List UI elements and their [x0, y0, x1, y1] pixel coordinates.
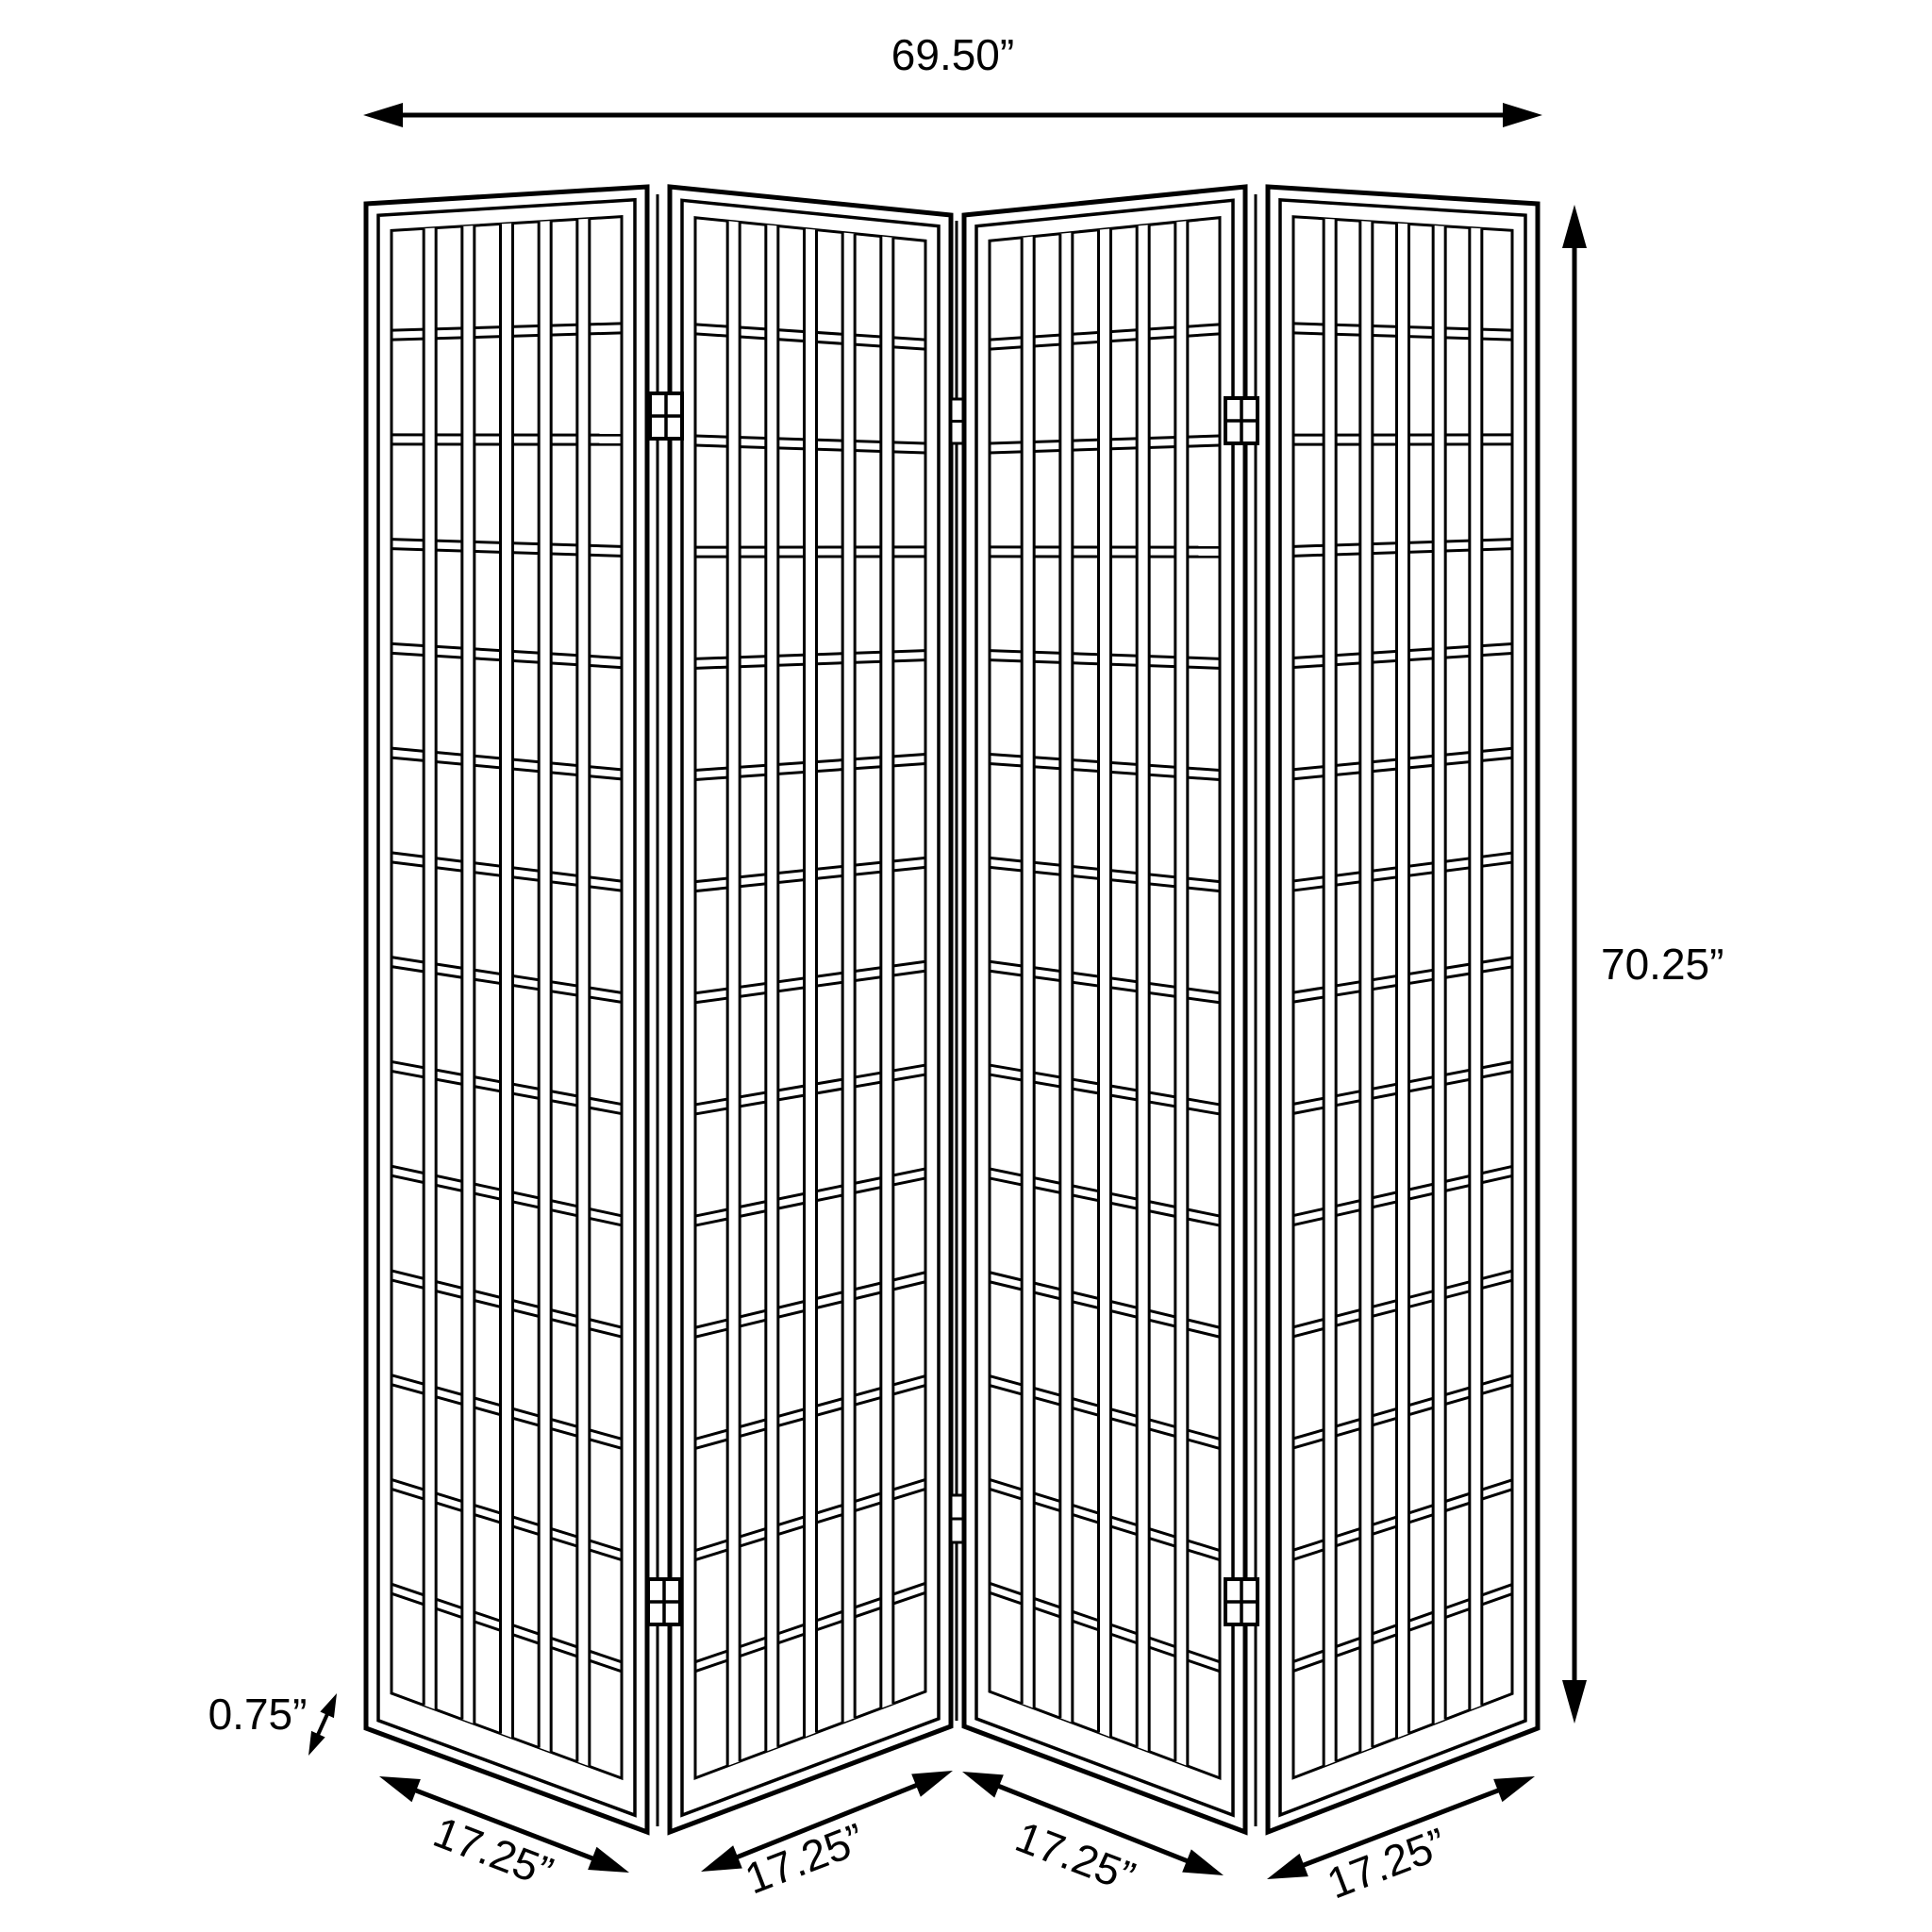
cross-hinge [648, 1579, 680, 1624]
panel-width-label-2: 17.25” [739, 1813, 871, 1903]
panel-1 [366, 187, 647, 1832]
height-dimension-label: 70.25” [1601, 940, 1724, 989]
panel-width-dimension-3: 17.25” [962, 1772, 1224, 1902]
panel-width-dimension-1: 17.25” [379, 1776, 629, 1897]
width-dimension-label: 69.50” [891, 30, 1014, 79]
cross-hinge [1225, 1579, 1257, 1624]
panel-2 [670, 187, 951, 1832]
pin-hinge [951, 399, 963, 443]
height-dimension: 70.25” [1562, 205, 1724, 1724]
diagram-canvas: 69.50” 70.25” 0.75” 17.25” 17.25” 17.25”… [0, 0, 1932, 1932]
panel-4 [1268, 187, 1538, 1832]
width-dimension: 69.50” [363, 30, 1542, 127]
cross-hinge [1225, 398, 1257, 443]
panel-width-dimension-2: 17.25” [701, 1771, 953, 1904]
divider-dimension-diagram: 69.50” 70.25” 0.75” 17.25” 17.25” 17.25”… [0, 0, 1932, 1932]
cross-hinge [650, 393, 682, 439]
thickness-dimension-label: 0.75” [208, 1690, 308, 1739]
panel-width-label-3: 17.25” [1009, 1811, 1141, 1901]
pin-hinge [951, 1495, 963, 1542]
panel-3 [964, 187, 1245, 1832]
panel-width-dimension-4: 17.25” [1267, 1776, 1535, 1908]
thickness-dimension: 0.75” [208, 1690, 337, 1756]
